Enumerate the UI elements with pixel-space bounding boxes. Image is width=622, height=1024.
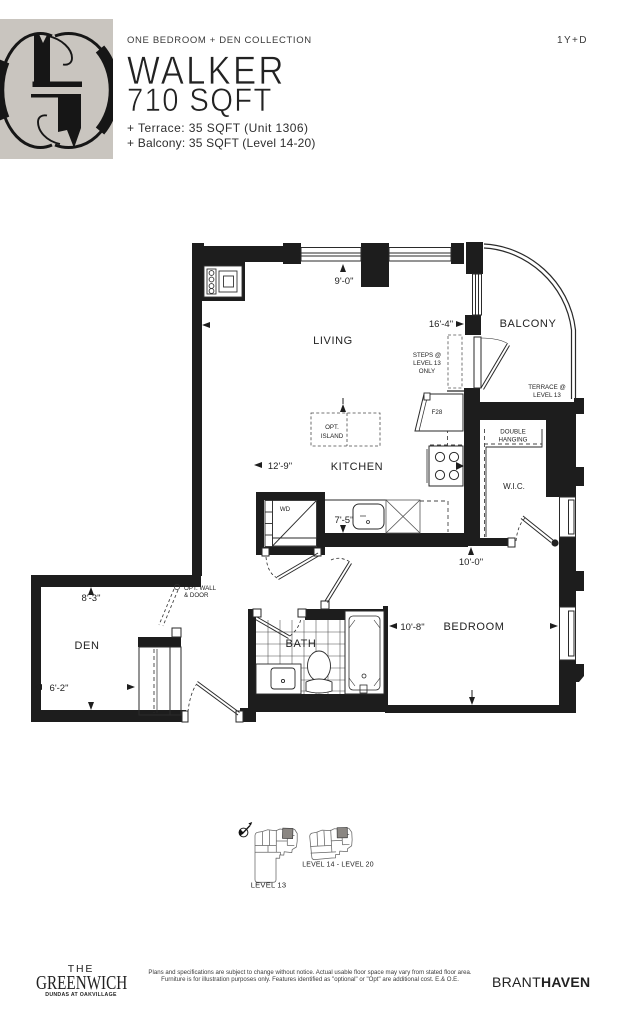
svg-text:WD: WD	[280, 506, 291, 513]
svg-text:& DOOR: & DOOR	[184, 592, 209, 599]
svg-text:LEVEL 13: LEVEL 13	[533, 392, 561, 399]
svg-text:TERRACE @: TERRACE @	[528, 384, 566, 391]
svg-text:LEVEL 13: LEVEL 13	[251, 881, 287, 890]
svg-text:DEN: DEN	[74, 640, 99, 652]
svg-text:LIVING: LIVING	[313, 335, 353, 347]
svg-text:KITCHEN: KITCHEN	[331, 461, 383, 473]
svg-text:8'-3": 8'-3"	[82, 593, 101, 604]
svg-text:STEPS @: STEPS @	[413, 352, 441, 359]
svg-text:10'-0": 10'-0"	[459, 557, 483, 568]
svg-text:W.I.C.: W.I.C.	[503, 482, 525, 491]
svg-text:LEVEL 13: LEVEL 13	[413, 360, 441, 367]
svg-text:OPT. WALL: OPT. WALL	[184, 585, 217, 592]
svg-text:BATH: BATH	[286, 638, 317, 650]
svg-text:HANGING: HANGING	[499, 437, 528, 444]
svg-text:9'-0": 9'-0"	[335, 276, 354, 287]
svg-text:12'-9": 12'-9"	[268, 461, 292, 472]
svg-text:16'-4": 16'-4"	[429, 319, 453, 330]
svg-text:F28: F28	[432, 409, 443, 416]
svg-text:BALCONY: BALCONY	[500, 318, 557, 330]
svg-text:6'-2": 6'-2"	[50, 683, 69, 694]
svg-text:OPT.: OPT.	[325, 424, 339, 431]
svg-text:7'-5": 7'-5"	[335, 515, 354, 526]
svg-text:ISLAND: ISLAND	[321, 433, 344, 440]
svg-text:BEDROOM: BEDROOM	[443, 621, 504, 633]
svg-text:10'-8": 10'-8"	[400, 622, 424, 633]
svg-text:LEVEL 14 - LEVEL 20: LEVEL 14 - LEVEL 20	[302, 862, 373, 869]
svg-text:DOUBLE: DOUBLE	[500, 429, 525, 436]
svg-text:ONLY: ONLY	[419, 368, 435, 375]
